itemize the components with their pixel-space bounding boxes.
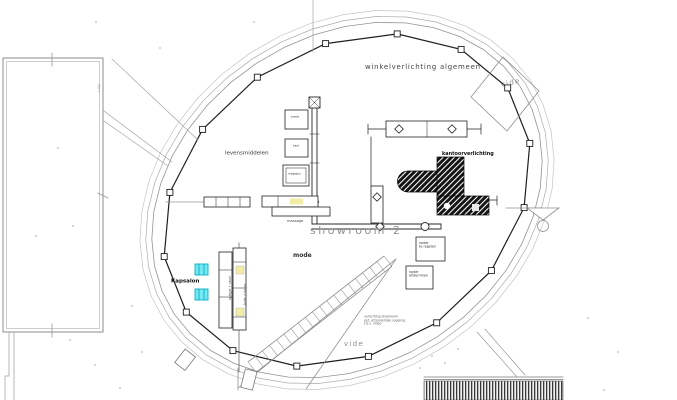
connection-lines <box>104 0 313 166</box>
fixture-box-1-label: prada <box>291 115 299 118</box>
room-label-massage: massage <box>287 219 303 223</box>
note-box-b-line2: afstemmen <box>409 274 428 278</box>
room-label-goods-area: levensmiddelen <box>225 150 269 156</box>
counter-right-label: balie + kassa <box>243 283 247 305</box>
floorplan-page: winkelverlichting algemeen kantoorverlic… <box>0 0 677 400</box>
desk-detail-dot <box>444 203 450 209</box>
room-label-mode: mode <box>293 252 312 259</box>
stair-note: verlichting showroom det. afzonderlijke … <box>364 315 405 326</box>
room-label-kapsalon: Kapsalon <box>171 278 199 284</box>
showroom-title: showroom 2 <box>310 225 402 238</box>
room-label-lighting-general: winkelverlichting algemeen <box>365 63 481 71</box>
vide-label-lower: vide <box>344 340 364 348</box>
fixture-box-3-label: magazijn <box>288 172 301 175</box>
display-counters <box>166 196 330 216</box>
note-box-b-label: nader afstemmen <box>409 270 428 278</box>
note-box-a-line2: te regelen <box>419 245 436 249</box>
adjacent-building-outline <box>3 53 108 400</box>
paper-speckles <box>35 21 619 391</box>
floorplan-canvas <box>0 0 677 400</box>
room-label-office-lighting: kantoorverlichting <box>442 151 494 157</box>
fixture-box-2-label: kast <box>293 144 299 147</box>
striped-wall-band <box>424 329 563 400</box>
line-ref-label: lijn c <box>97 84 101 92</box>
counter-left-label: spiegel + stoel <box>228 276 232 300</box>
shell-entries <box>175 349 257 390</box>
stair-note-line3: t.b.v. video <box>364 322 405 326</box>
desk-detail-patch <box>472 204 479 211</box>
note-box-a-label: nader te regelen <box>419 241 436 249</box>
